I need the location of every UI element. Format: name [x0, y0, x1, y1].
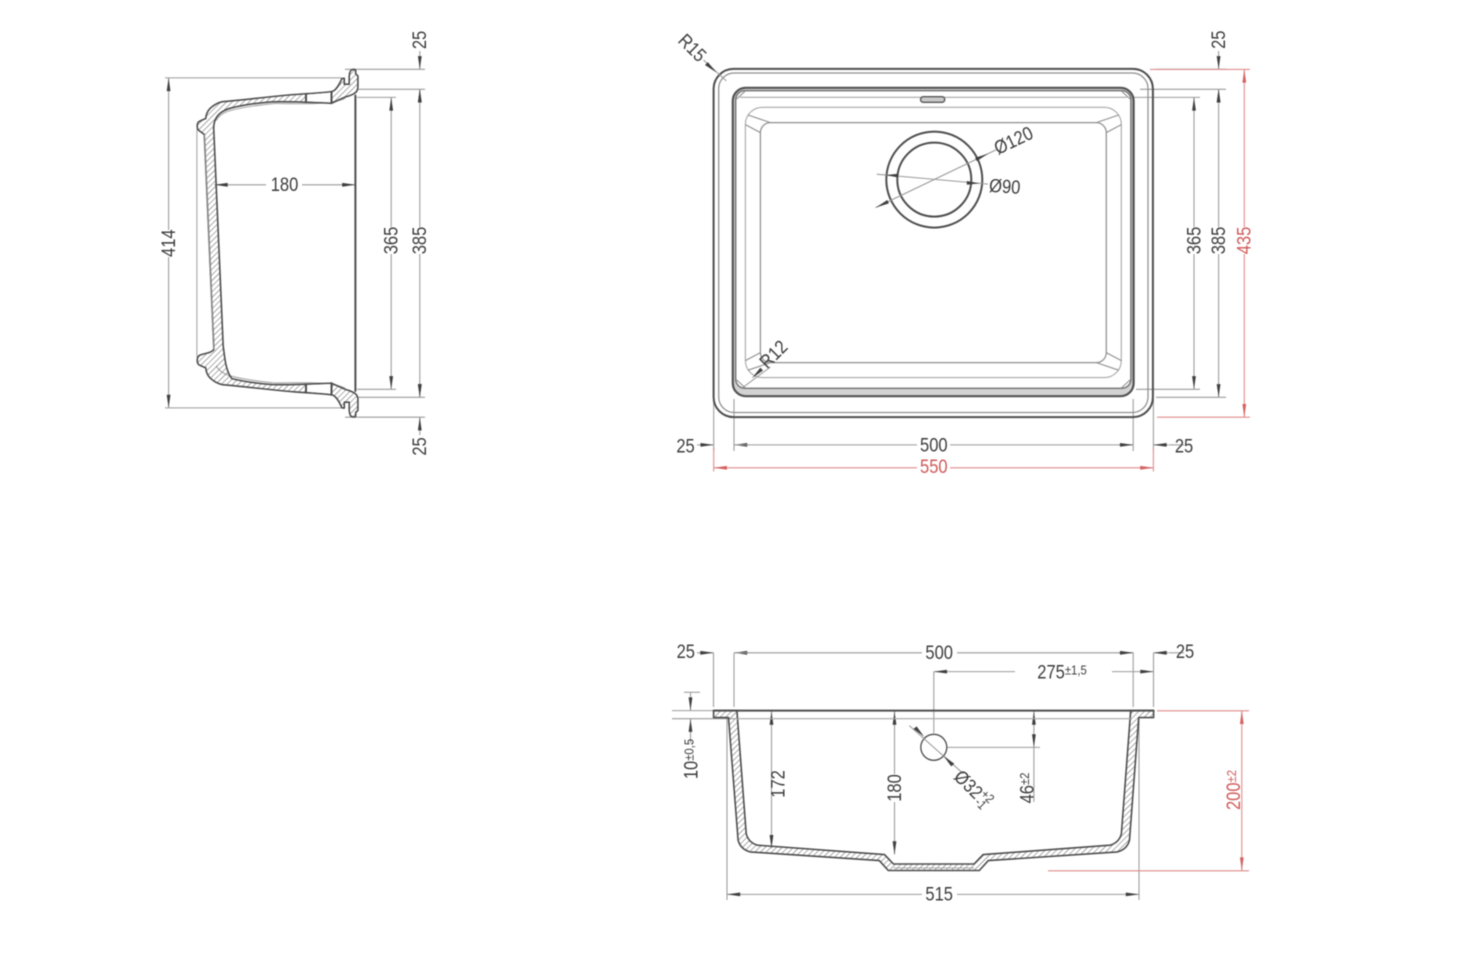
- svg-text:25: 25: [409, 437, 430, 455]
- svg-text:25: 25: [1208, 30, 1229, 48]
- svg-text:500: 500: [920, 435, 948, 456]
- svg-text:25: 25: [1176, 641, 1194, 662]
- svg-text:180: 180: [884, 774, 905, 802]
- svg-text:515: 515: [925, 884, 953, 905]
- svg-text:365: 365: [381, 227, 402, 255]
- svg-text:172: 172: [768, 770, 789, 798]
- svg-text:550: 550: [920, 456, 948, 477]
- svg-text:385: 385: [409, 227, 430, 255]
- svg-text:414: 414: [158, 229, 179, 257]
- svg-text:435: 435: [1234, 227, 1255, 255]
- svg-text:25: 25: [677, 641, 695, 662]
- svg-text:Ø90: Ø90: [988, 175, 1021, 198]
- svg-text:25: 25: [1175, 436, 1193, 457]
- svg-text:25: 25: [409, 31, 430, 49]
- svg-text:500: 500: [925, 642, 953, 663]
- svg-text:365: 365: [1183, 227, 1204, 255]
- svg-text:180: 180: [271, 174, 299, 195]
- svg-text:25: 25: [676, 436, 694, 457]
- svg-text:385: 385: [1208, 227, 1229, 255]
